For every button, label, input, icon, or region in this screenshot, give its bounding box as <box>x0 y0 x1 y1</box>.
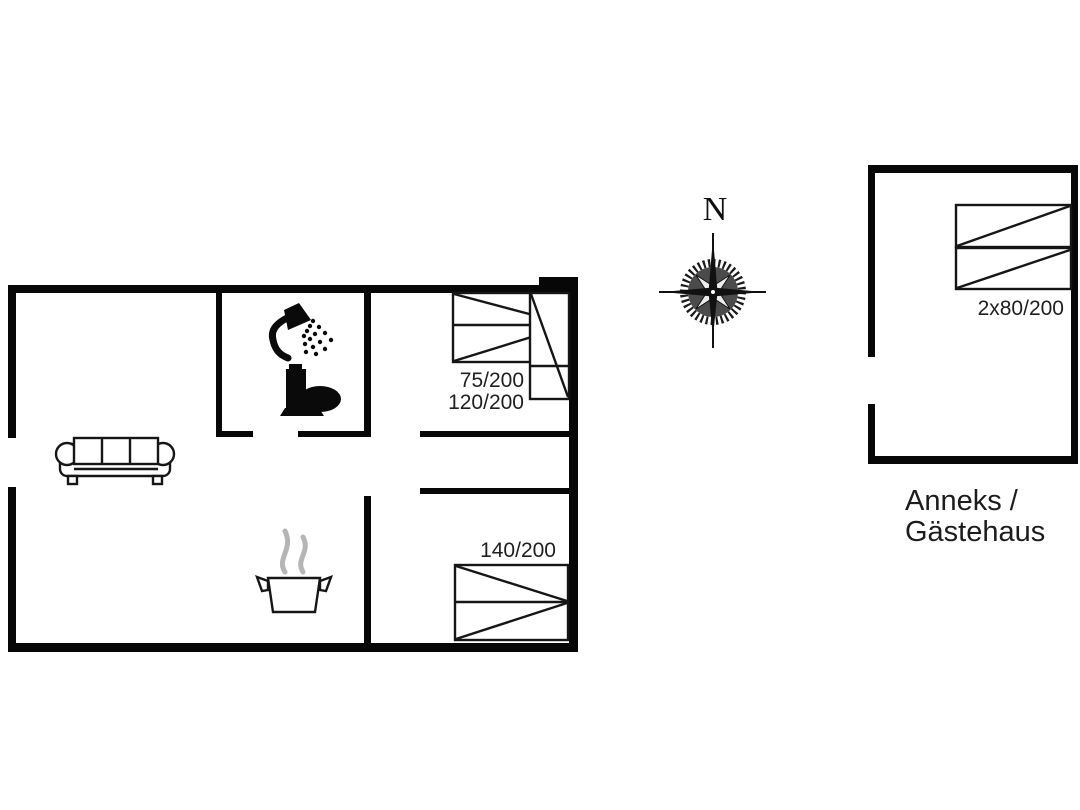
cooking-pot-icon <box>257 531 331 612</box>
wall-top <box>8 285 578 293</box>
sofa-cushions <box>74 438 158 464</box>
wall-bottom <box>8 643 578 652</box>
annex-caption-line2: Gästehaus <box>905 517 1080 548</box>
pot-handle-right <box>320 577 331 591</box>
wall-bathroom-right <box>364 285 371 436</box>
annex-wall-bottom <box>868 456 1078 464</box>
bed-label-140-200: 140/200 <box>460 540 556 561</box>
bed-2x80x200 <box>956 205 1071 289</box>
compass-center <box>711 290 715 294</box>
sofa-icon <box>56 438 174 484</box>
floor-plan-canvas: N 75/200 120/200 140/200 2x80/200 Anneks… <box>0 0 1080 810</box>
main-house <box>8 277 578 652</box>
wall-bedroom2-top <box>420 488 569 494</box>
shower-icon <box>272 303 333 358</box>
wall-mid-seg1 <box>216 431 253 437</box>
bed-label-120-200: 120/200 <box>428 392 524 413</box>
wall-mid-seg3 <box>420 431 569 437</box>
bed-75x200 <box>530 293 569 399</box>
shower-spray <box>302 319 333 356</box>
wall-kitchen <box>364 496 371 646</box>
pot-handle-left <box>257 577 268 591</box>
annex-caption-line1: Anneks / <box>905 486 1080 517</box>
steam-icon <box>282 531 287 572</box>
wall-left-upper <box>8 285 16 438</box>
sofa-leg-right <box>153 476 162 484</box>
wall-mid-seg2 <box>298 431 371 437</box>
toilet-icon <box>280 364 341 416</box>
wall-right <box>569 285 578 652</box>
floor-plan-drawing <box>0 0 1080 810</box>
annex-wall-left-upper <box>868 165 875 357</box>
steam-icon <box>301 537 306 572</box>
bed-label-2x80-200: 2x80/200 <box>958 298 1064 319</box>
wall-bathroom-left <box>216 285 222 436</box>
compass-north-label: N <box>693 193 737 227</box>
annex-wall-top <box>868 165 1078 173</box>
annex-wall-left-lower <box>868 404 875 464</box>
pot-body <box>268 578 320 612</box>
bed-label-75-200: 75/200 <box>436 370 524 391</box>
compass-rose-icon <box>659 233 766 348</box>
bed-140x200 <box>455 565 568 640</box>
wall-left-lower <box>8 487 16 652</box>
annex-caption: Anneks / Gästehaus <box>905 486 1080 548</box>
sofa-leg-left <box>68 476 77 484</box>
